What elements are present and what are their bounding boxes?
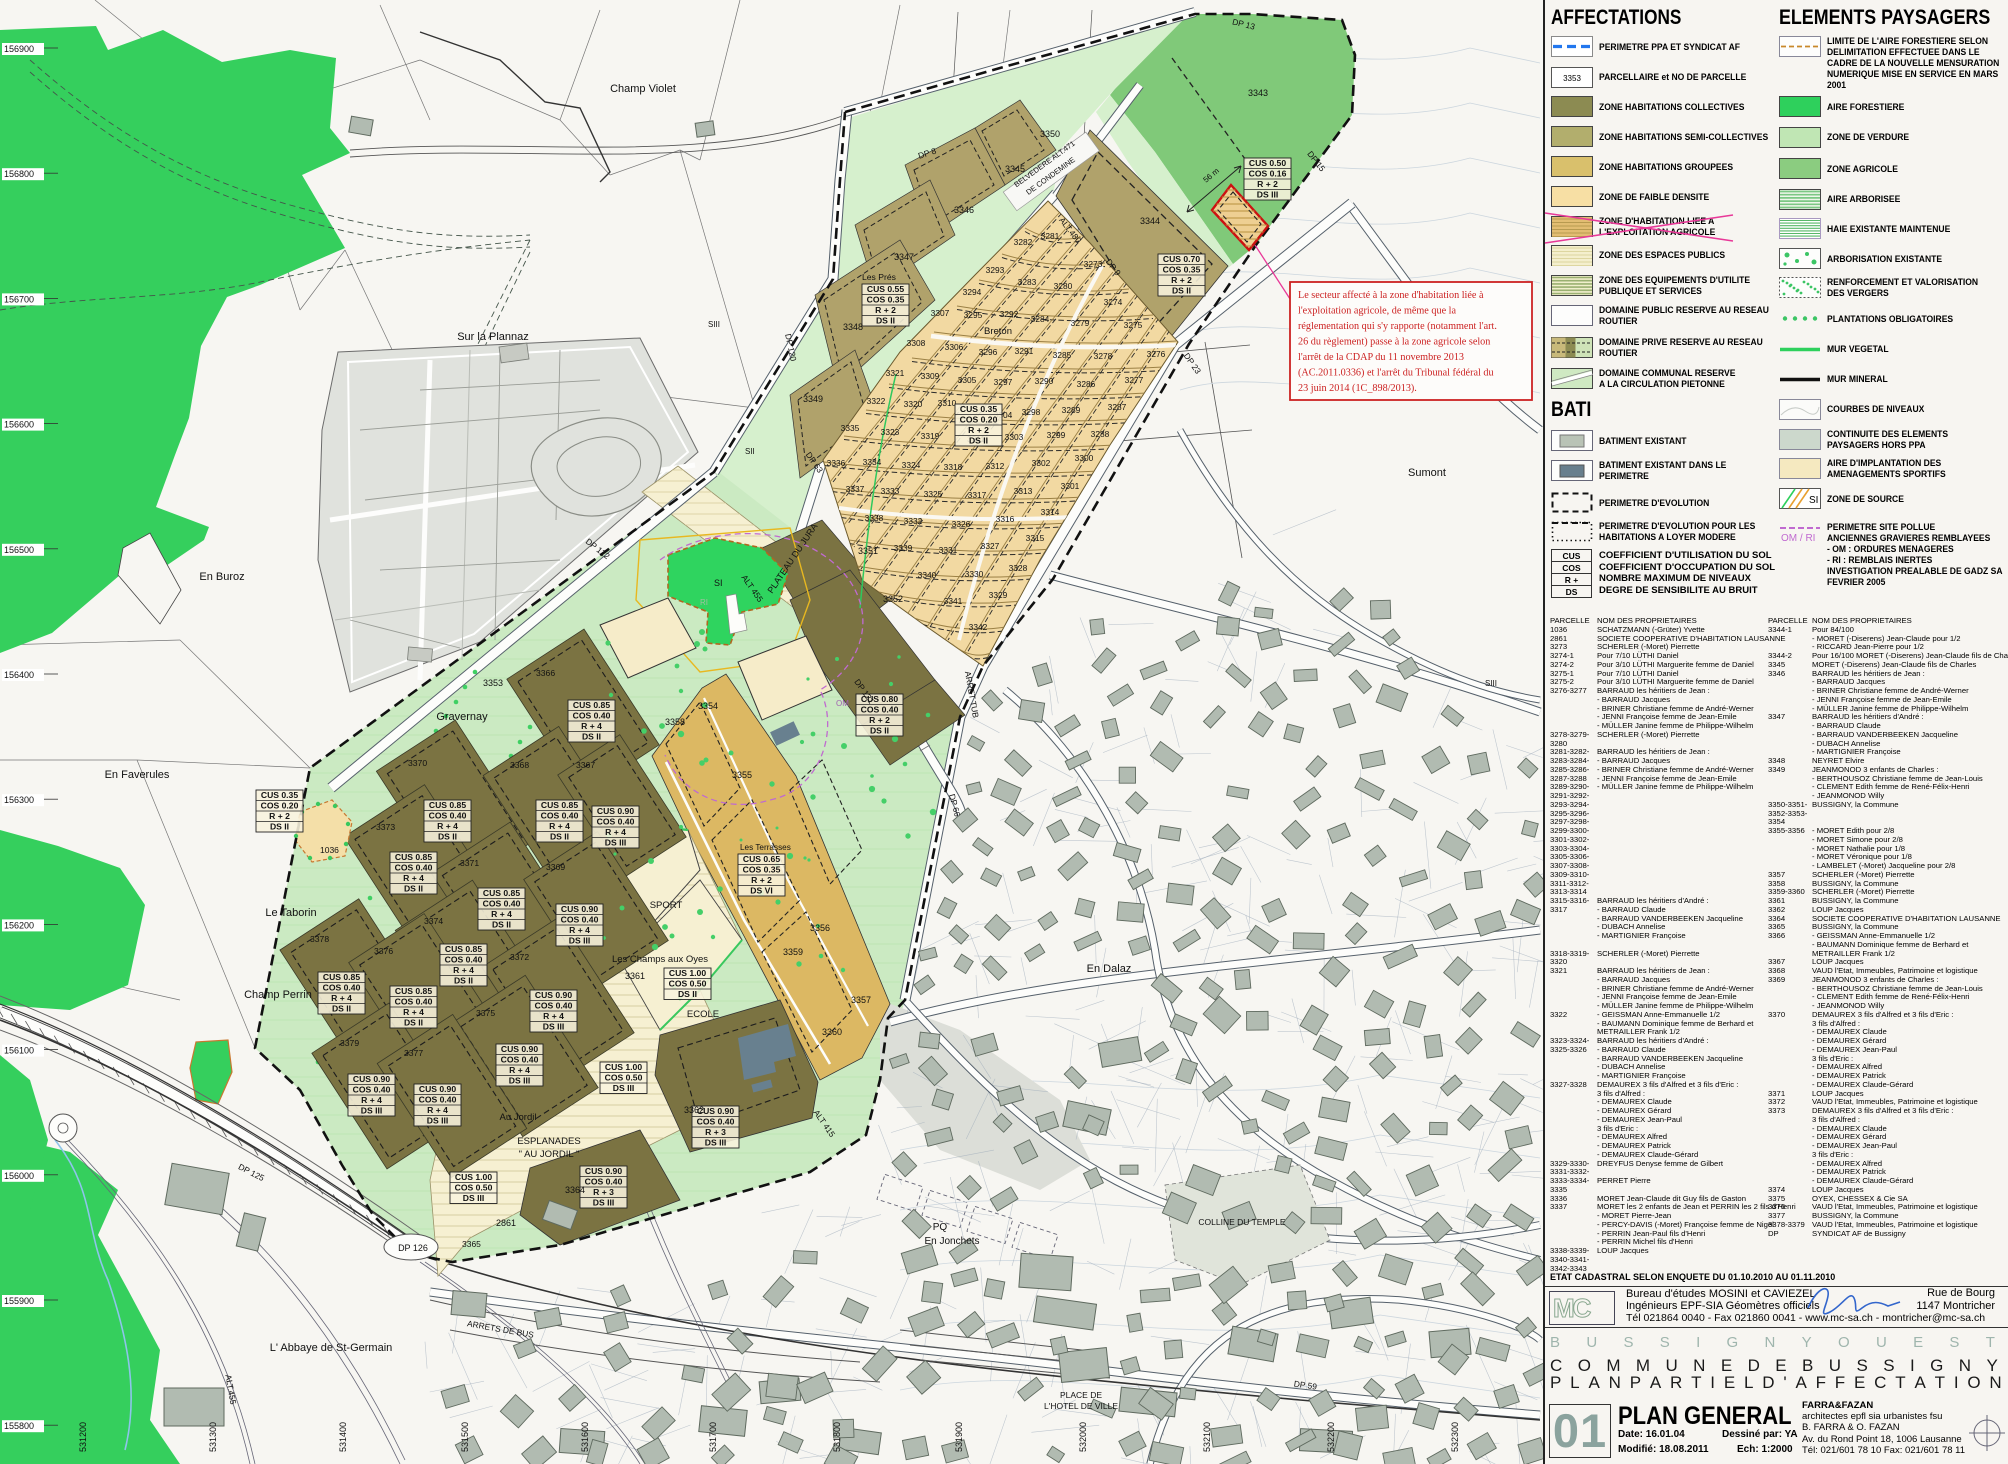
svg-text:532100: 532100 <box>1202 1422 1212 1452</box>
svg-text:Gravernay: Gravernay <box>436 711 488 723</box>
svg-text:Sur la Plannaz: Sur la Plannaz <box>457 331 529 343</box>
svg-text:COS 0.40: COS 0.40 <box>323 982 361 992</box>
svg-text:3281: 3281 <box>1041 231 1060 241</box>
svg-text:CUS 0.85: CUS 0.85 <box>395 852 432 862</box>
svg-text:R + 2: R + 2 <box>751 875 772 885</box>
svg-text:3360: 3360 <box>822 1027 842 1037</box>
svg-text:CUS 0.90: CUS 0.90 <box>597 806 634 816</box>
svg-text:CUS 0.85: CUS 0.85 <box>395 986 432 996</box>
svg-text:3333: 3333 <box>881 486 900 496</box>
svg-text:3335: 3335 <box>841 423 860 433</box>
svg-text:23 juin 2014 (1C_898/2013).: 23 juin 2014 (1C_898/2013). <box>1298 383 1417 394</box>
svg-text:R + 4: R + 4 <box>543 1011 564 1021</box>
svg-text:3324: 3324 <box>902 460 921 470</box>
svg-text:DS III: DS III <box>427 1115 449 1125</box>
svg-text:3285: 3285 <box>1053 350 1072 360</box>
svg-text:COS 0.40: COS 0.40 <box>429 810 467 820</box>
svg-text:DS III: DS III <box>613 1083 635 1093</box>
svg-text:" AU JORDIL ": " AU JORDIL " <box>519 1149 580 1160</box>
svg-text:3361: 3361 <box>625 971 645 981</box>
svg-text:3330: 3330 <box>965 569 984 579</box>
svg-text:En Dalaz: En Dalaz <box>1087 963 1132 975</box>
svg-text:531200: 531200 <box>78 1422 88 1452</box>
svg-text:531900: 531900 <box>954 1422 964 1452</box>
svg-text:DS III: DS III <box>593 1197 615 1207</box>
svg-text:531700: 531700 <box>708 1422 718 1452</box>
svg-text:3287: 3287 <box>1108 402 1127 412</box>
svg-text:3313: 3313 <box>1014 486 1033 496</box>
svg-text:3353: 3353 <box>1563 74 1581 83</box>
svg-text:3282: 3282 <box>1014 237 1033 247</box>
svg-text:3370: 3370 <box>408 758 427 768</box>
svg-text:3328: 3328 <box>1009 563 1028 573</box>
svg-text:3323: 3323 <box>881 427 900 437</box>
svg-text:COS 0.35: COS 0.35 <box>867 294 905 304</box>
svg-text:3299: 3299 <box>1047 430 1066 440</box>
svg-text:3356: 3356 <box>810 923 830 933</box>
svg-text:CUS 0.90: CUS 0.90 <box>419 1084 456 1094</box>
svg-text:En Buroz: En Buroz <box>199 571 244 583</box>
svg-text:3334: 3334 <box>863 457 882 467</box>
svg-text:3366: 3366 <box>536 668 555 678</box>
svg-text:156000: 156000 <box>4 1171 34 1181</box>
svg-text:156100: 156100 <box>4 1046 34 1056</box>
svg-text:156900: 156900 <box>4 44 34 54</box>
svg-text:R + 2: R + 2 <box>269 811 290 821</box>
svg-text:COS 0.40: COS 0.40 <box>395 862 433 872</box>
svg-text:3327: 3327 <box>981 541 1000 551</box>
svg-text:CUS 1.00: CUS 1.00 <box>669 968 706 978</box>
svg-text:R + 4: R + 4 <box>427 1105 448 1115</box>
svg-text:CUS 0.50: CUS 0.50 <box>1249 158 1286 168</box>
svg-text:DS II: DS II <box>876 315 895 325</box>
svg-text:CUS 1.00: CUS 1.00 <box>455 1172 492 1182</box>
svg-text:COS 0.40: COS 0.40 <box>541 810 579 820</box>
svg-text:COS 0.35: COS 0.35 <box>1163 264 1201 274</box>
svg-text:DS III: DS III <box>509 1075 531 1085</box>
svg-text:COS 0.35: COS 0.35 <box>743 864 781 874</box>
svg-text:3368: 3368 <box>510 760 529 770</box>
svg-text:COS 0.50: COS 0.50 <box>455 1182 493 1192</box>
svg-text:CUS 1.00: CUS 1.00 <box>605 1062 642 1072</box>
svg-text:Breton: Breton <box>984 326 1012 337</box>
svg-text:En Faverules: En Faverules <box>105 769 170 781</box>
svg-text:156800: 156800 <box>4 169 34 179</box>
svg-text:3376: 3376 <box>374 946 393 956</box>
svg-text:Sumont: Sumont <box>1408 467 1446 479</box>
svg-text:COS 0.40: COS 0.40 <box>535 1000 573 1010</box>
svg-text:3340: 3340 <box>918 570 937 580</box>
svg-text:R + 3: R + 3 <box>705 1127 726 1137</box>
svg-text:COS 0.40: COS 0.40 <box>353 1084 391 1094</box>
svg-text:SIII: SIII <box>708 320 720 329</box>
svg-text:Les Prés: Les Prés <box>862 272 896 282</box>
svg-text:531300: 531300 <box>208 1422 218 1452</box>
svg-text:3308: 3308 <box>907 338 926 348</box>
svg-text:R + 4: R + 4 <box>569 925 590 935</box>
svg-text:CUS 0.85: CUS 0.85 <box>429 800 466 810</box>
svg-text:3343: 3343 <box>1248 88 1268 98</box>
svg-text:COS 0.20: COS 0.20 <box>960 414 998 424</box>
svg-text:3342: 3342 <box>969 622 988 632</box>
svg-text:3344: 3344 <box>1140 216 1160 226</box>
svg-text:3318: 3318 <box>944 462 963 472</box>
svg-text:155800: 155800 <box>4 1421 34 1431</box>
svg-text:3347: 3347 <box>894 252 914 262</box>
svg-text:3364: 3364 <box>565 1185 585 1195</box>
svg-text:R + 4: R + 4 <box>491 909 512 919</box>
svg-text:3353: 3353 <box>483 678 503 688</box>
svg-text:531500: 531500 <box>460 1422 470 1452</box>
svg-text:1036: 1036 <box>320 845 339 855</box>
svg-text:COS 0.40: COS 0.40 <box>419 1094 457 1104</box>
svg-text:3298: 3298 <box>1022 407 1041 417</box>
svg-text:SI: SI <box>1809 495 1818 506</box>
svg-text:CUS 0.90: CUS 0.90 <box>561 904 598 914</box>
svg-text:3378: 3378 <box>310 934 329 944</box>
svg-text:3345: 3345 <box>1005 164 1025 174</box>
svg-text:SIII: SIII <box>1485 679 1497 688</box>
svg-text:3375: 3375 <box>476 1008 495 1018</box>
svg-text:3351: 3351 <box>858 546 878 556</box>
svg-text:3301: 3301 <box>1061 481 1080 491</box>
svg-text:3372: 3372 <box>510 952 529 962</box>
svg-text:156200: 156200 <box>4 920 34 930</box>
svg-text:Les Champs aux Oyes: Les Champs aux Oyes <box>612 954 708 965</box>
svg-text:3297: 3297 <box>994 377 1013 387</box>
svg-text:COS 0.40: COS 0.40 <box>395 996 433 1006</box>
svg-text:COLLINE DU TEMPLE: COLLINE DU TEMPLE <box>1198 1217 1286 1227</box>
svg-text:CUS 0.85: CUS 0.85 <box>541 800 578 810</box>
svg-text:Au Jordil: Au Jordil <box>500 1112 537 1123</box>
svg-text:l'arrêt de la CDAP du 11 novem: l'arrêt de la CDAP du 11 novembre 2013 <box>1298 352 1464 363</box>
svg-text:531800: 531800 <box>832 1422 842 1452</box>
svg-text:3312: 3312 <box>986 461 1005 471</box>
svg-text:3294: 3294 <box>963 287 982 297</box>
svg-text:3337: 3337 <box>846 484 865 494</box>
svg-text:DS III: DS III <box>569 935 591 945</box>
svg-text:3319: 3319 <box>921 431 940 441</box>
svg-text:3278: 3278 <box>1094 351 1113 361</box>
svg-text:MC: MC <box>1553 1293 1592 1323</box>
svg-text:COS 0.40: COS 0.40 <box>561 914 599 924</box>
svg-text:R + 4: R + 4 <box>437 821 458 831</box>
svg-text:3307: 3307 <box>931 308 950 318</box>
svg-text:PQ: PQ <box>933 1222 948 1233</box>
svg-text:CUS 0.85: CUS 0.85 <box>483 888 520 898</box>
svg-text:3374: 3374 <box>424 916 443 926</box>
svg-text:l'exploitation agricole, de mê: l'exploitation agricole, de même que la <box>1298 306 1456 317</box>
svg-text:PLACE DE: PLACE DE <box>1060 1390 1102 1400</box>
svg-text:156300: 156300 <box>4 795 34 805</box>
svg-text:3379: 3379 <box>340 1038 359 1048</box>
svg-text:R + 4: R + 4 <box>403 1007 424 1017</box>
svg-text:3275: 3275 <box>1124 320 1143 330</box>
svg-text:DS II: DS II <box>582 731 601 741</box>
svg-text:3305: 3305 <box>958 375 977 385</box>
svg-text:3306: 3306 <box>945 342 964 352</box>
svg-text:SII: SII <box>745 447 755 456</box>
svg-text:3331: 3331 <box>939 545 958 555</box>
svg-text:156700: 156700 <box>4 294 34 304</box>
svg-text:DS III: DS III <box>361 1105 383 1115</box>
svg-text:3295: 3295 <box>964 310 983 320</box>
svg-text:R + 4: R + 4 <box>453 965 474 975</box>
svg-text:COS 0.40: COS 0.40 <box>697 1116 735 1126</box>
svg-text:L' Abbaye de St-Germain: L' Abbaye de St-Germain <box>270 1342 393 1354</box>
svg-text:Champ Violet: Champ Violet <box>610 83 676 95</box>
svg-text:R + 4: R + 4 <box>605 827 626 837</box>
svg-text:3349: 3349 <box>803 394 823 404</box>
svg-text:R + 4: R + 4 <box>581 721 602 731</box>
svg-text:R + 2: R + 2 <box>1257 179 1278 189</box>
svg-text:DS VI: DS VI <box>750 885 772 895</box>
svg-text:3322: 3322 <box>867 396 886 406</box>
svg-text:3293: 3293 <box>986 265 1005 275</box>
svg-text:(AC.2011.0336) et l'arrêt du T: (AC.2011.0336) et l'arrêt du Tribunal fé… <box>1298 368 1494 379</box>
svg-text:DS III: DS III <box>705 1137 727 1147</box>
svg-text:OM: OM <box>836 699 849 708</box>
svg-text:3325: 3325 <box>924 489 943 499</box>
svg-text:531600: 531600 <box>580 1422 590 1452</box>
svg-text:DS II: DS II <box>492 919 511 929</box>
svg-text:3354: 3354 <box>698 701 718 711</box>
svg-text:3303: 3303 <box>1005 432 1024 442</box>
svg-text:CUS 0.35: CUS 0.35 <box>960 404 997 414</box>
svg-text:3350: 3350 <box>1040 129 1060 139</box>
svg-text:3320: 3320 <box>904 399 923 409</box>
svg-text:3317: 3317 <box>968 490 987 500</box>
svg-text:3367: 3367 <box>576 760 595 770</box>
svg-text:3371: 3371 <box>460 858 479 868</box>
svg-text:CUS 0.90: CUS 0.90 <box>501 1044 538 1054</box>
svg-text:3339: 3339 <box>894 543 913 553</box>
svg-text:DS II: DS II <box>454 975 473 985</box>
svg-text:R + 2: R + 2 <box>1171 275 1192 285</box>
svg-text:3292: 3292 <box>1000 309 1019 319</box>
svg-text:2861: 2861 <box>496 1218 516 1228</box>
svg-text:3296: 3296 <box>979 347 998 357</box>
svg-text:156500: 156500 <box>4 545 34 555</box>
svg-text:3274: 3274 <box>1104 297 1123 307</box>
svg-text:COS 0.40: COS 0.40 <box>861 704 899 714</box>
svg-text:3276: 3276 <box>1147 349 1166 359</box>
svg-text:DS II: DS II <box>1172 285 1191 295</box>
svg-text:DS III: DS III <box>543 1021 565 1031</box>
svg-text:R + 2: R + 2 <box>968 425 989 435</box>
svg-text:COS 0.40: COS 0.40 <box>597 816 635 826</box>
svg-text:DS II: DS II <box>678 989 697 999</box>
svg-text:DS II: DS II <box>870 725 889 735</box>
svg-text:3277: 3277 <box>1125 375 1144 385</box>
svg-text:155900: 155900 <box>4 1296 34 1306</box>
svg-text:R + 4: R + 4 <box>549 821 570 831</box>
svg-text:3338: 3338 <box>865 513 884 523</box>
svg-text:CUS 0.70: CUS 0.70 <box>1163 254 1200 264</box>
svg-text:3289: 3289 <box>1062 405 1081 415</box>
svg-text:R + 4: R + 4 <box>509 1065 530 1075</box>
svg-text:3358: 3358 <box>665 717 685 727</box>
svg-text:DS II: DS II <box>270 821 289 831</box>
svg-text:CUS 0.55: CUS 0.55 <box>867 284 904 294</box>
svg-text:3284: 3284 <box>1031 314 1050 324</box>
svg-text:3321: 3321 <box>886 368 905 378</box>
svg-text:DS II: DS II <box>550 831 569 841</box>
svg-text:532000: 532000 <box>1078 1422 1088 1452</box>
svg-text:COS 0.50: COS 0.50 <box>605 1072 643 1082</box>
svg-text:3286: 3286 <box>1077 379 1096 389</box>
svg-text:R + 3: R + 3 <box>593 1187 614 1197</box>
svg-text:3288: 3288 <box>1091 429 1110 439</box>
svg-text:CUS 0.35: CUS 0.35 <box>261 790 298 800</box>
svg-text:CUS 0.65: CUS 0.65 <box>743 854 780 864</box>
svg-text:DS II: DS II <box>404 1017 423 1027</box>
svg-text:3315: 3315 <box>1026 533 1045 543</box>
svg-text:3302: 3302 <box>1032 458 1051 468</box>
svg-text:OM / RI: OM / RI <box>1781 533 1815 543</box>
svg-text:DP 126: DP 126 <box>398 1243 428 1253</box>
svg-text:Champ Perrin: Champ Perrin <box>244 989 312 1001</box>
svg-text:3341: 3341 <box>944 596 963 606</box>
svg-text:DS III: DS III <box>1257 189 1279 199</box>
svg-text:ECOLE: ECOLE <box>687 1009 719 1020</box>
svg-text:COS 0.40: COS 0.40 <box>483 898 521 908</box>
svg-text:CUS 0.90: CUS 0.90 <box>535 990 572 1000</box>
svg-text:COS 0.40: COS 0.40 <box>445 954 483 964</box>
svg-text:SI: SI <box>714 578 723 588</box>
svg-text:R + 2: R + 2 <box>869 715 890 725</box>
svg-text:En Jonchets: En Jonchets <box>924 1236 979 1247</box>
svg-text:CUS 0.85: CUS 0.85 <box>445 944 482 954</box>
svg-text:156600: 156600 <box>4 420 34 430</box>
svg-text:3362: 3362 <box>684 1105 704 1115</box>
svg-text:3314: 3314 <box>1041 507 1060 517</box>
svg-text:3355: 3355 <box>732 770 752 780</box>
svg-text:R + 4: R + 4 <box>331 993 352 1003</box>
svg-text:3310: 3310 <box>938 398 957 408</box>
svg-text:R + 4: R + 4 <box>361 1095 382 1105</box>
svg-text:3273: 3273 <box>1084 259 1103 269</box>
svg-text:L'HOTEL DE VILLE: L'HOTEL DE VILLE <box>1044 1401 1118 1411</box>
svg-text:COS 0.16: COS 0.16 <box>1249 168 1287 178</box>
svg-text:3369: 3369 <box>546 862 565 872</box>
svg-text:DS III: DS III <box>605 837 627 847</box>
svg-text:DS II: DS II <box>969 435 988 445</box>
svg-text:531400: 531400 <box>338 1422 348 1452</box>
svg-text:3279: 3279 <box>1071 318 1090 328</box>
svg-text:SPORT: SPORT <box>650 900 683 911</box>
svg-text:ESPLANADES: ESPLANADES <box>517 1136 580 1147</box>
svg-text:3329: 3329 <box>989 590 1008 600</box>
svg-text:3359: 3359 <box>783 947 803 957</box>
svg-text:CUS 0.90: CUS 0.90 <box>585 1166 622 1176</box>
svg-text:COS 0.40: COS 0.40 <box>573 710 611 720</box>
svg-text:Les Terrasses: Les Terrasses <box>740 843 791 852</box>
svg-text:3357: 3357 <box>851 995 871 1005</box>
svg-text:3290: 3290 <box>1035 376 1054 386</box>
svg-text:532300: 532300 <box>1450 1422 1460 1452</box>
svg-text:3346: 3346 <box>954 205 974 215</box>
svg-text:3336: 3336 <box>827 458 846 468</box>
svg-text:3373: 3373 <box>376 822 395 832</box>
svg-text:3300: 3300 <box>1075 453 1094 463</box>
svg-text:3316: 3316 <box>996 514 1015 524</box>
svg-text:DS II: DS II <box>438 831 457 841</box>
svg-text:3352: 3352 <box>883 594 903 604</box>
svg-text:Le Taborin: Le Taborin <box>265 907 316 919</box>
svg-text:réglementation qui s'y rapport: réglementation qui s'y rapporte (notamme… <box>1298 321 1497 332</box>
svg-text:3283: 3283 <box>1018 277 1037 287</box>
svg-text:3326: 3326 <box>952 519 971 529</box>
svg-text:532200: 532200 <box>1326 1422 1336 1452</box>
svg-text:COS 0.40: COS 0.40 <box>585 1176 623 1186</box>
svg-text:DS II: DS II <box>332 1003 351 1013</box>
svg-text:26 du règlement) passe à la zo: 26 du règlement) passe à la zone agricol… <box>1298 337 1490 348</box>
svg-text:3377: 3377 <box>404 1048 423 1058</box>
svg-text:CUS 0.85: CUS 0.85 <box>323 972 360 982</box>
svg-text:3280: 3280 <box>1054 281 1073 291</box>
svg-text:DS III: DS III <box>463 1193 485 1203</box>
svg-text:COS 0.40: COS 0.40 <box>501 1054 539 1064</box>
svg-text:3365: 3365 <box>462 1239 481 1249</box>
svg-text:R + 4: R + 4 <box>403 873 424 883</box>
svg-text:3291: 3291 <box>1015 346 1034 356</box>
svg-text:3348: 3348 <box>843 322 863 332</box>
svg-text:Le secteur affecté à la zone d: Le secteur affecté à la zone d'habitatio… <box>1298 290 1484 301</box>
svg-text:R + 2: R + 2 <box>875 305 896 315</box>
svg-text:156400: 156400 <box>4 670 34 680</box>
svg-text:COS 0.50: COS 0.50 <box>669 978 707 988</box>
svg-text:DS II: DS II <box>404 883 423 893</box>
svg-text:COS 0.20: COS 0.20 <box>261 800 299 810</box>
svg-text:3332: 3332 <box>904 516 923 526</box>
svg-text:3309: 3309 <box>921 371 940 381</box>
svg-text:CUS 0.85: CUS 0.85 <box>573 700 610 710</box>
svg-text:RI: RI <box>700 598 708 607</box>
svg-text:CUS 0.90: CUS 0.90 <box>353 1074 390 1084</box>
